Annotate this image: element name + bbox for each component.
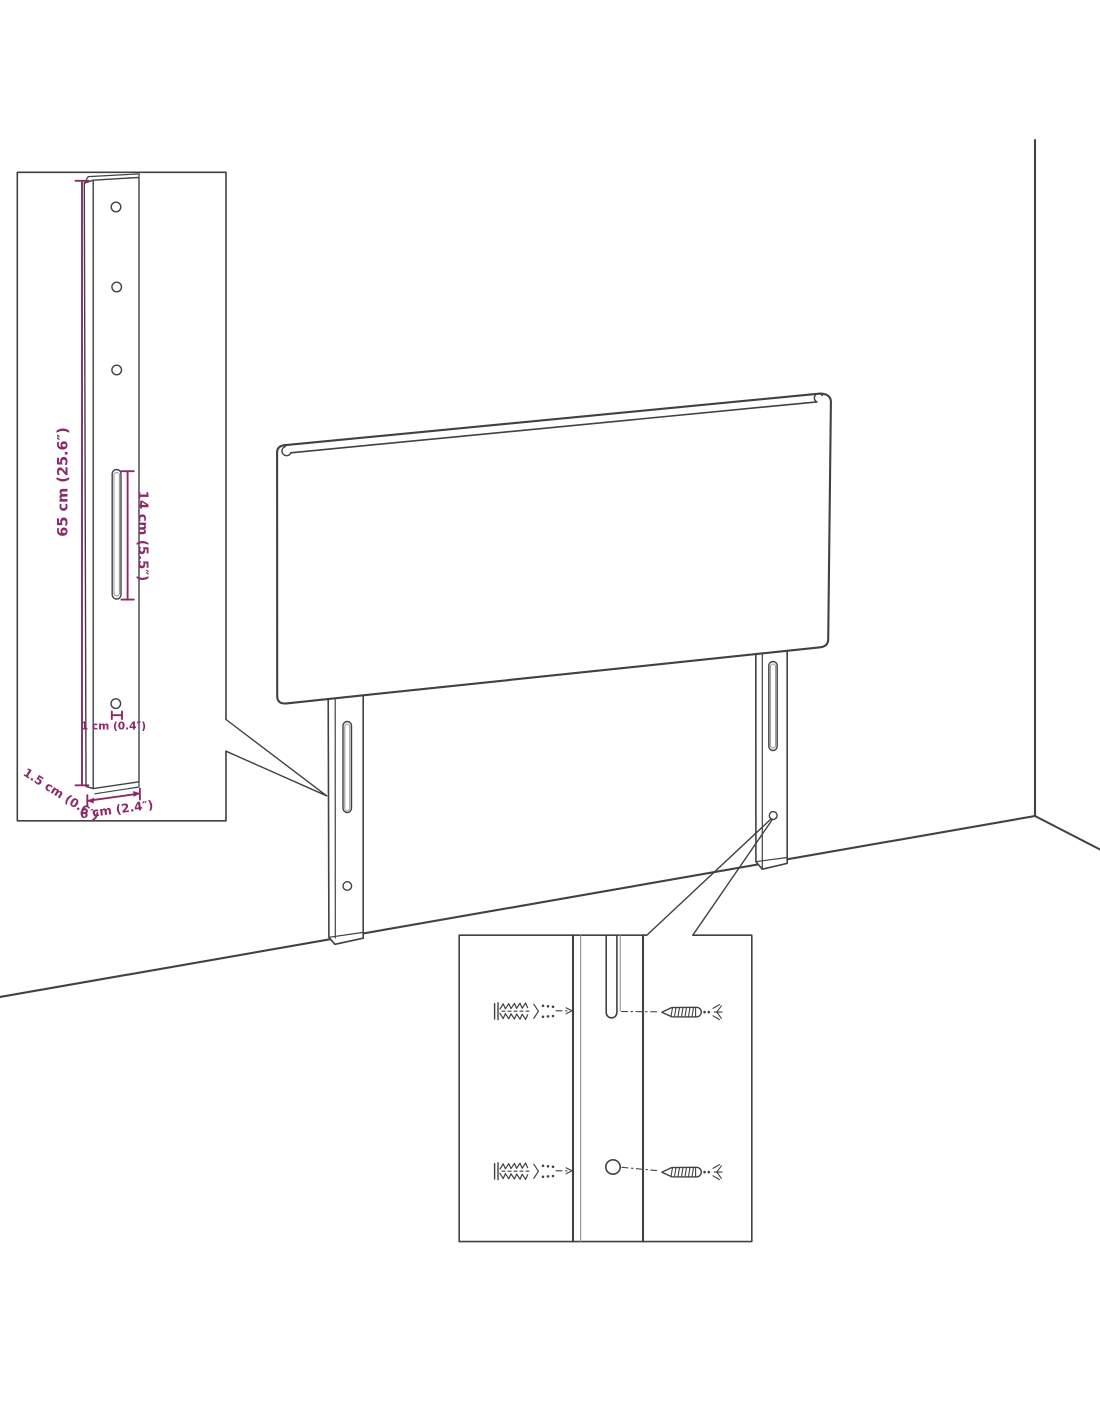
panel-front-face: [277, 394, 831, 704]
mounting-detail-inset: [459, 935, 752, 1241]
bracket-hole-3: [112, 365, 122, 375]
callout-lines-bracket: [226, 720, 327, 796]
bracket-side-face: [84, 180, 93, 788]
mounting-callout-line-left: [647, 818, 773, 936]
mounting-callout-line-right: [693, 818, 774, 935]
bracket-hole-2: [112, 282, 122, 292]
dimension-hole-label: 1 cm (0.4″): [81, 721, 146, 733]
bracket-hole-4: [111, 699, 121, 709]
bracket-detail-inset: 65 cm (25.6″) 14 cm (5.5″) 1 cm (0.4″) 6…: [17, 172, 226, 824]
dimension-height-label: 65 cm (25.6″): [56, 427, 72, 537]
bracket-hole-1: [111, 202, 121, 212]
headboard-right-leg: [756, 639, 787, 869]
hole-closeup: [606, 1160, 620, 1174]
floor-line-right: [1035, 816, 1100, 850]
dimension-slot-label: 14 cm (5.5″): [135, 491, 150, 581]
callout-lines-mounting: [647, 818, 774, 936]
assembly-diagram-page: 65 cm (25.6″) 14 cm (5.5″) 1 cm (0.4″) 6…: [0, 0, 1100, 1422]
headboard-assembly-diagram: 65 cm (25.6″) 14 cm (5.5″) 1 cm (0.4″) 6…: [0, 0, 1100, 1422]
headboard-panel: [277, 394, 831, 704]
left-leg-screw-hole: [343, 882, 352, 891]
headboard-left-leg: [328, 693, 363, 945]
right-leg-screw-hole: [769, 812, 777, 820]
